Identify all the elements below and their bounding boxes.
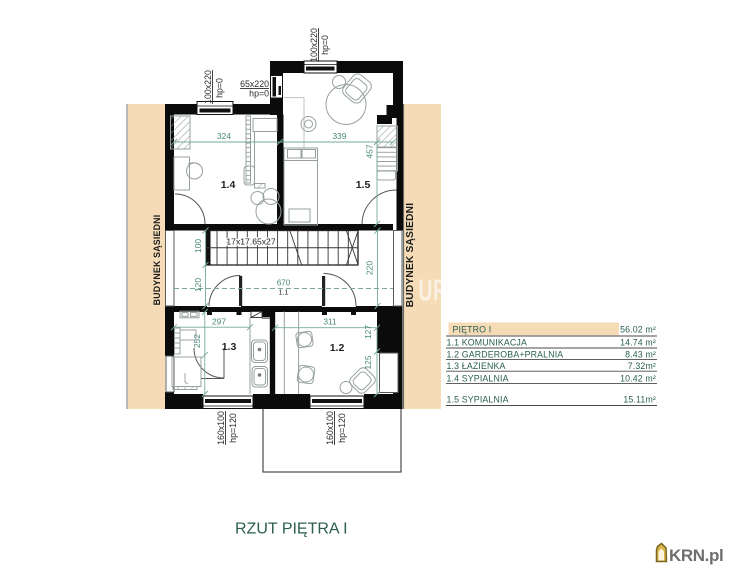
svg-text:339: 339 bbox=[333, 131, 347, 141]
svg-text:1.3 ŁAZIENKA: 1.3 ŁAZIENKA bbox=[447, 361, 506, 371]
svg-text:120: 120 bbox=[193, 278, 203, 292]
svg-text:100x220: 100x220 bbox=[203, 70, 213, 104]
svg-text:670: 670 bbox=[277, 279, 291, 288]
svg-text:311: 311 bbox=[323, 316, 337, 326]
svg-text:1.1: 1.1 bbox=[279, 290, 289, 297]
svg-text:1.1 KOMUNIKACJA: 1.1 KOMUNIKACJA bbox=[447, 338, 527, 348]
svg-text:1.3: 1.3 bbox=[222, 341, 237, 353]
svg-text:125: 125 bbox=[363, 355, 373, 369]
svg-text:100: 100 bbox=[193, 239, 203, 253]
svg-text:100x220: 100x220 bbox=[309, 28, 319, 62]
svg-text:hp=120: hp=120 bbox=[228, 413, 238, 443]
svg-text:1.5: 1.5 bbox=[356, 179, 371, 191]
svg-text:1.4 SYPIALNIA: 1.4 SYPIALNIA bbox=[447, 373, 509, 383]
svg-text:17x17.65x27: 17x17.65x27 bbox=[226, 237, 275, 247]
svg-text:1.4: 1.4 bbox=[221, 179, 236, 191]
svg-text:14.74 m²: 14.74 m² bbox=[620, 338, 656, 348]
svg-text:KRN.pl: KRN.pl bbox=[669, 546, 723, 565]
svg-text:220: 220 bbox=[365, 261, 375, 275]
svg-text:324: 324 bbox=[217, 131, 231, 141]
svg-text:127: 127 bbox=[363, 325, 373, 339]
svg-text:65x220: 65x220 bbox=[240, 79, 269, 89]
svg-text:7.32m²: 7.32m² bbox=[628, 361, 656, 371]
svg-text:hp=0: hp=0 bbox=[320, 35, 330, 55]
svg-text:PIĘTRO I: PIĘTRO I bbox=[453, 324, 492, 334]
svg-text:UR: UR bbox=[419, 274, 448, 308]
svg-text:hp=0: hp=0 bbox=[249, 89, 269, 99]
svg-text:RZUT PIĘTRA I: RZUT PIĘTRA I bbox=[235, 521, 348, 538]
svg-text:56.02 m²: 56.02 m² bbox=[620, 325, 656, 335]
svg-text:1.5 SYPIALNIA: 1.5 SYPIALNIA bbox=[447, 395, 509, 405]
svg-text:1.2: 1.2 bbox=[330, 342, 345, 354]
svg-text:hp=120: hp=120 bbox=[337, 413, 347, 443]
svg-text:457: 457 bbox=[365, 144, 375, 158]
svg-text:BUDYNEK SĄSIEDNI: BUDYNEK SĄSIEDNI bbox=[405, 203, 416, 308]
svg-text:10.42 m²: 10.42 m² bbox=[620, 373, 656, 383]
svg-text:1.2 GARDEROBA+PRALNIA: 1.2 GARDEROBA+PRALNIA bbox=[447, 349, 564, 359]
svg-text:252: 252 bbox=[192, 334, 202, 348]
svg-text:160x100: 160x100 bbox=[216, 411, 226, 445]
svg-text:BUDYNEK SĄSIEDNI: BUDYNEK SĄSIEDNI bbox=[152, 215, 162, 306]
svg-text:hp=0: hp=0 bbox=[215, 78, 225, 98]
svg-text:8.43 m²: 8.43 m² bbox=[625, 349, 656, 359]
svg-text:160x100: 160x100 bbox=[325, 411, 335, 445]
svg-text:297: 297 bbox=[212, 316, 226, 326]
svg-text:15.11m²: 15.11m² bbox=[623, 395, 656, 405]
